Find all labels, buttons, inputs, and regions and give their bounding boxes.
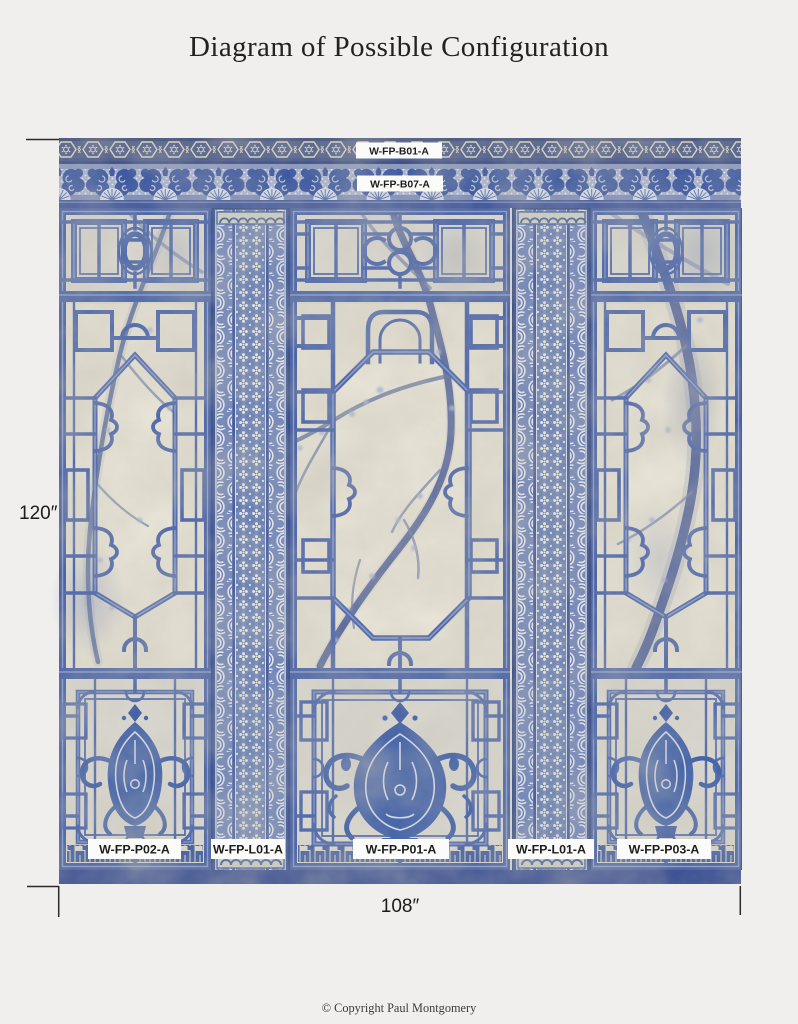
svg-text:W-FP-L01-A: W-FP-L01-A: [213, 843, 283, 857]
svg-text:Diagram of Possible Configurat: Diagram of Possible Configuration: [189, 31, 609, 63]
svg-text:W-FP-P02-A: W-FP-P02-A: [99, 843, 170, 857]
svg-text:108″: 108″: [381, 896, 420, 917]
svg-text:W-FP-B01-A: W-FP-B01-A: [369, 147, 429, 158]
svg-text:W-FP-P03-A: W-FP-P03-A: [629, 843, 700, 857]
svg-text:W-FP-B07-A: W-FP-B07-A: [370, 180, 430, 191]
svg-text:120″: 120″: [19, 503, 58, 524]
svg-text:W-FP-L01-A: W-FP-L01-A: [516, 843, 586, 857]
svg-text:© Copyright Paul Montgomery: © Copyright Paul Montgomery: [322, 1001, 477, 1015]
svg-text:W-FP-P01-A: W-FP-P01-A: [366, 843, 437, 857]
